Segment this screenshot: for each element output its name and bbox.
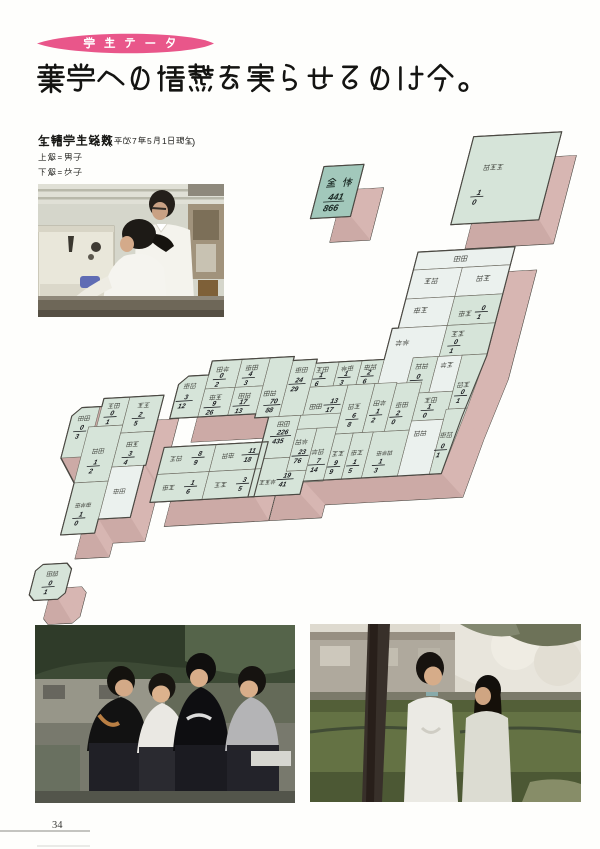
svg-text:226: 226 bbox=[275, 429, 289, 437]
svg-text:34: 34 bbox=[52, 820, 63, 831]
svg-text:435: 435 bbox=[270, 438, 284, 446]
svg-text:441: 441 bbox=[326, 192, 345, 203]
